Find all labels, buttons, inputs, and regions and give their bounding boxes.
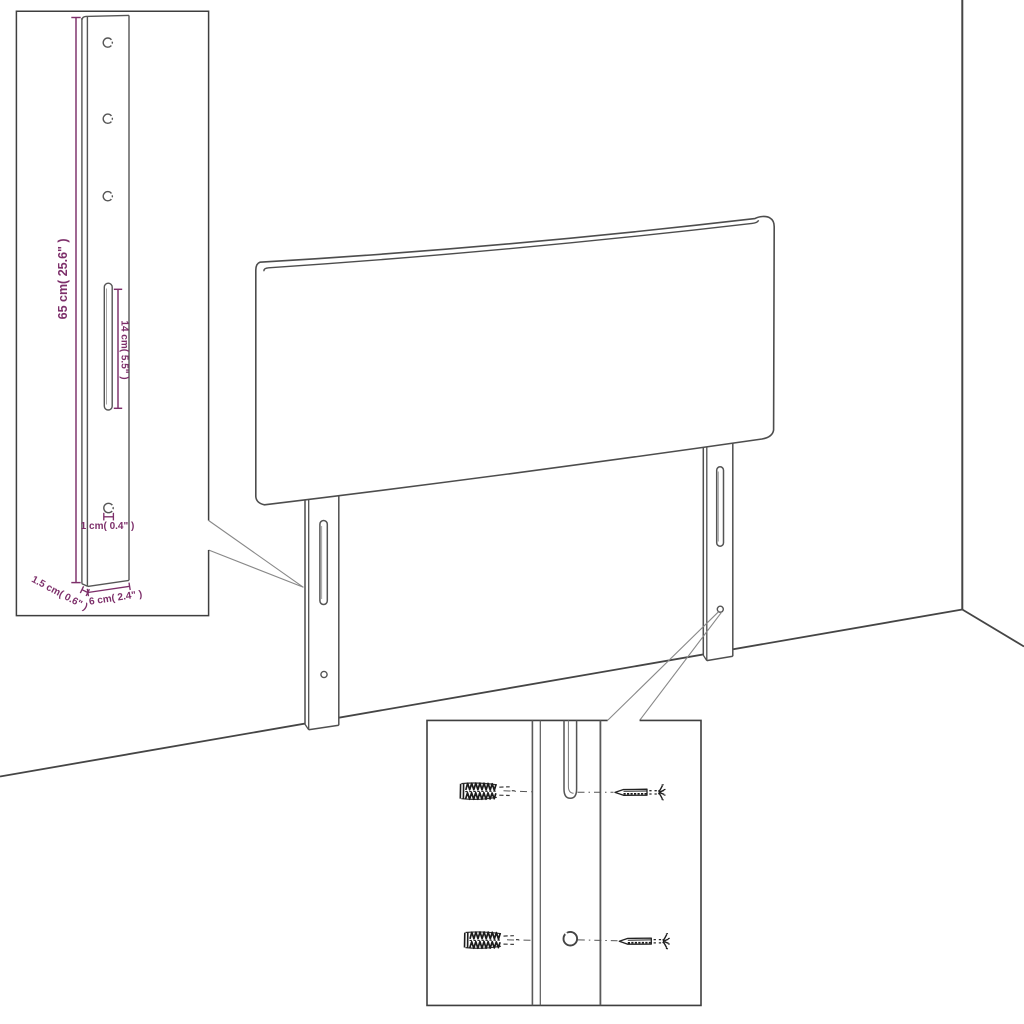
svg-text:65 cm( 25.6" ): 65 cm( 25.6" ): [56, 238, 70, 319]
svg-text:1 cm( 0.4" ): 1 cm( 0.4" ): [81, 521, 135, 532]
svg-text:14 cm( 5.5" ): 14 cm( 5.5" ): [119, 320, 130, 379]
